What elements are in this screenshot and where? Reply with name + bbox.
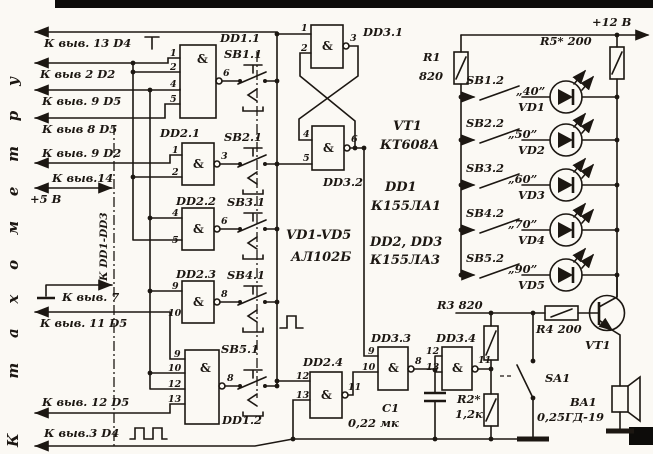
part-ref: VD1-VD5 xyxy=(286,228,351,243)
switch-ref: SB5.1 xyxy=(221,342,259,356)
scan-artifact-top-bar xyxy=(55,0,653,8)
pin-label: 1 xyxy=(170,48,177,59)
part-value: К155ЛА3 xyxy=(369,253,440,268)
pin-label: 5 xyxy=(172,235,179,246)
pushbutton-sb4-1: SB4.1 xyxy=(227,268,267,332)
switch-ref: SB1.1 xyxy=(224,47,262,61)
and-symbol: & xyxy=(197,52,208,66)
emission-arrow xyxy=(574,204,585,217)
pushbutton-sb1-1: SB1.1 xyxy=(224,47,267,111)
capacitor-plates xyxy=(424,393,446,401)
switch-label: SA1 xyxy=(545,371,570,385)
input-label: К выв 2 D2 xyxy=(39,67,115,81)
emission-arrow xyxy=(582,210,593,223)
pin-label: 3 xyxy=(350,33,357,44)
inverter-bubble xyxy=(343,43,349,49)
pin-label: 10 xyxy=(362,362,376,373)
resistor-value: 820 xyxy=(419,69,443,83)
and-symbol: & xyxy=(193,157,204,171)
speaker-horn xyxy=(628,377,640,421)
supply-5v-label: +5 В xyxy=(30,192,62,206)
inverter-bubble xyxy=(216,78,222,84)
resistor-r5: R5* 200 xyxy=(539,34,624,297)
pin-label: 10 xyxy=(168,363,182,374)
resistor-label: R2* xyxy=(456,392,481,406)
switch-ref: SB3.2 xyxy=(466,161,504,175)
pin-label: 4 xyxy=(170,79,177,90)
gate-ref: DD1.2 xyxy=(221,413,262,427)
switch-ref: SB1.2 xyxy=(466,73,504,87)
emission-arrow xyxy=(582,165,593,178)
power-bus-note: К DD1-DD3 xyxy=(98,212,110,282)
pin-label: 3 xyxy=(221,151,228,162)
gate-ref: DD1.1 xyxy=(219,31,260,45)
emitter-wire xyxy=(599,320,612,330)
diode-triangle xyxy=(558,267,573,283)
led-row-vd2: SB2.2 „50” VD2 xyxy=(461,114,617,157)
led-row-vd1: SB1.2 „40” VD1 xyxy=(461,71,617,114)
part-ref: DD1 xyxy=(384,180,417,195)
pin-label: 2 xyxy=(169,62,177,73)
resistor-stroke xyxy=(551,309,572,317)
emission-arrow xyxy=(582,77,593,90)
gate-ref: DD2.2 xyxy=(175,194,216,208)
left-buses xyxy=(133,34,311,389)
speaker-body xyxy=(612,386,628,412)
pin-label: 4 xyxy=(172,208,179,219)
contact xyxy=(263,300,267,304)
emission-arrow xyxy=(582,120,593,133)
switch-ref: SB4.1 xyxy=(227,268,265,282)
emission-arrow xyxy=(574,159,585,172)
latch-cross-coupling xyxy=(299,46,378,356)
contact xyxy=(238,79,242,83)
pin-label: 8 xyxy=(415,356,422,367)
inverter-bubble xyxy=(214,161,220,167)
led-ref: VD5 xyxy=(518,278,545,292)
and-symbol: & xyxy=(323,141,334,155)
pin-label: 9 xyxy=(172,281,179,292)
pin-label: 12 xyxy=(168,379,182,390)
speaker-ba1: BA1 0,25ГД-19 xyxy=(537,377,640,431)
cap-ref: С1 xyxy=(382,401,399,415)
and-symbol: & xyxy=(322,39,333,53)
output-wire xyxy=(348,372,378,395)
emission-arrow xyxy=(574,114,585,127)
contact xyxy=(238,162,242,166)
speaker-ref: BA1 xyxy=(569,395,597,409)
gate-dd3-2: & DD3.2 4 5 6 xyxy=(303,126,363,189)
pin-label: 10 xyxy=(168,308,182,319)
contact xyxy=(238,300,242,304)
inverter-bubble xyxy=(408,366,414,372)
led-ref: VD4 xyxy=(518,233,545,247)
input-label: К выв.14 xyxy=(51,171,113,185)
diode-triangle xyxy=(558,177,573,193)
gate-dd3-3: & DD3.3 9 10 8 xyxy=(362,331,435,390)
pin-label: 9 xyxy=(174,349,181,360)
resistor-stroke xyxy=(612,52,622,74)
schematic-scan: К тахометру К DD1-DD3 К выв. 13 D4 К выв… xyxy=(0,0,653,454)
speed-label: „70” xyxy=(508,217,538,231)
resistor-stroke xyxy=(486,331,496,355)
collector-wire xyxy=(599,275,617,307)
input-label: К выв. 7 xyxy=(61,290,119,304)
switch-symbol xyxy=(238,286,266,332)
speed-label: „40” xyxy=(516,84,546,98)
led-ref: VD3 xyxy=(518,188,545,202)
switch-symbol xyxy=(238,148,266,194)
resistor-stroke xyxy=(456,57,466,79)
gate-ref: DD3.2 xyxy=(322,175,363,189)
switch-symbol xyxy=(238,370,266,416)
resistor-r2: R2* 1,2к xyxy=(455,392,498,439)
supply-12v-label: +12 В xyxy=(592,15,632,29)
schematic-svg: К тахометру К DD1-DD3 К выв. 13 D4 К выв… xyxy=(0,0,653,454)
cap-value: 0,22 мк xyxy=(348,416,399,430)
pushbutton-sb3-1: SB3.1 xyxy=(227,195,267,259)
emitter-lead xyxy=(612,330,620,386)
pin-label: 6 xyxy=(223,68,230,79)
pin-label: 8 xyxy=(221,289,228,300)
contact xyxy=(263,384,267,388)
gate-ref: DD2.3 xyxy=(175,267,216,281)
pin-label: 11 xyxy=(348,382,361,393)
input-label: К выв. 9 D5 xyxy=(41,94,121,108)
switch-ref: SB2.2 xyxy=(466,116,504,130)
speed-label: „60” xyxy=(508,172,538,186)
and-symbol: & xyxy=(200,361,211,375)
gate-ref: DD2.1 xyxy=(159,126,200,140)
wire-input1-and-bus xyxy=(35,32,277,386)
switch-ref: SB2.1 xyxy=(224,130,262,144)
input-label: К выв.3 D4 xyxy=(43,426,119,440)
transistor-label: VT1 xyxy=(585,338,610,352)
pin-label: 13 xyxy=(168,394,182,405)
part-ref: VT1 xyxy=(393,119,422,134)
input-label: К выв. 12 D5 xyxy=(41,395,129,409)
gate-ref: DD3.1 xyxy=(362,25,403,39)
led-row-vd3: SB3.2 „60” VD3 xyxy=(461,159,617,202)
led-row-vd4: SB4.2 „70” VD4 xyxy=(461,204,617,247)
resistor-label: R5* 200 xyxy=(539,34,592,48)
input-label: К выв. 9 D2 xyxy=(41,146,121,160)
switch-ref: SB4.2 xyxy=(466,206,504,220)
input-label: К выв 8 D5 xyxy=(41,122,117,136)
resistor-stroke xyxy=(486,399,496,421)
pin-label: 2 xyxy=(171,167,179,178)
gate-ref: DD2.4 xyxy=(302,355,343,369)
wire-feedback-stub xyxy=(293,400,310,439)
transistor-vt1: VT1 xyxy=(585,275,625,386)
pulse-symbol xyxy=(280,316,303,328)
wire-input2 xyxy=(35,58,180,63)
and-symbol: & xyxy=(193,295,204,309)
pin-label: 9 xyxy=(368,346,375,357)
switch-symbol xyxy=(238,65,266,111)
t-pulse-symbol xyxy=(145,37,159,49)
contact xyxy=(263,227,267,231)
inverter-bubble xyxy=(219,383,225,389)
led-ref: VD2 xyxy=(518,143,545,157)
resistor-label: R1 xyxy=(422,50,441,64)
emission-arrow xyxy=(582,255,593,268)
resistor-label: R3 820 xyxy=(436,298,483,312)
part-value: АЛ102Б xyxy=(290,250,351,265)
switch-lever xyxy=(480,86,519,100)
part-ref: DD2, DD3 xyxy=(369,235,442,250)
led-row-vd5: SB5.2 „90” VD5 xyxy=(461,249,617,292)
contact xyxy=(238,384,242,388)
pushbutton-sb2-1: SB2.1 xyxy=(224,130,267,194)
speaker-value: 0,25ГД-19 xyxy=(537,410,604,424)
pin-label: 13 xyxy=(296,390,310,401)
and-symbol: & xyxy=(388,361,399,375)
contact xyxy=(263,79,267,83)
tachometer-note: К тахометру xyxy=(4,75,22,448)
pin-label: 4 xyxy=(303,129,310,140)
diode-triangle xyxy=(558,222,573,238)
pin-label: 5 xyxy=(170,94,177,105)
input-label: К выв. 11 D5 xyxy=(39,316,127,330)
and-symbol: & xyxy=(321,388,332,402)
gate-ref: DD3.4 xyxy=(435,331,476,345)
square-wave-symbol xyxy=(130,428,167,439)
speed-label: „90” xyxy=(508,262,538,276)
sa1-wires xyxy=(517,313,533,439)
switch-symbol xyxy=(238,213,266,259)
and-symbol: & xyxy=(193,222,204,236)
diode-triangle xyxy=(558,132,573,148)
input-label: К выв. 13 D4 xyxy=(43,36,131,50)
pin-label: 1 xyxy=(172,145,179,156)
wire-input10-bottom-rail xyxy=(35,439,533,446)
inverter-bubble xyxy=(344,145,350,151)
emission-arrow xyxy=(574,249,585,262)
inverter-bubble xyxy=(214,299,220,305)
pin-label: 1 xyxy=(301,23,308,34)
resistor-value: 1,2к xyxy=(455,407,483,421)
led-rows: SB1.2 „40” VD1 SB2.2 „50” VD2 SB3.2 „60”… xyxy=(461,71,617,292)
emission-arrow xyxy=(574,71,585,84)
inverter-bubble xyxy=(214,226,220,232)
resistor-label: R4 200 xyxy=(535,322,582,336)
switch-ref: SB5.2 xyxy=(466,251,504,265)
part-value: К155ЛА1 xyxy=(370,199,441,214)
pin-label: 8 xyxy=(227,373,234,384)
and-symbol: & xyxy=(452,361,463,375)
pin-label: 5 xyxy=(303,153,310,164)
pin-label: 12 xyxy=(296,371,310,382)
inverter-bubble xyxy=(472,366,478,372)
speed-label: „50” xyxy=(508,127,538,141)
led-ref: VD1 xyxy=(518,100,545,114)
gate-ref: DD3.3 xyxy=(370,331,411,345)
contact xyxy=(263,162,267,166)
diode-triangle xyxy=(558,89,573,105)
pin-label: 6 xyxy=(221,216,228,227)
switch-ref: SB3.1 xyxy=(227,195,265,209)
part-value: КТ608А xyxy=(379,138,439,153)
contact xyxy=(238,227,242,231)
